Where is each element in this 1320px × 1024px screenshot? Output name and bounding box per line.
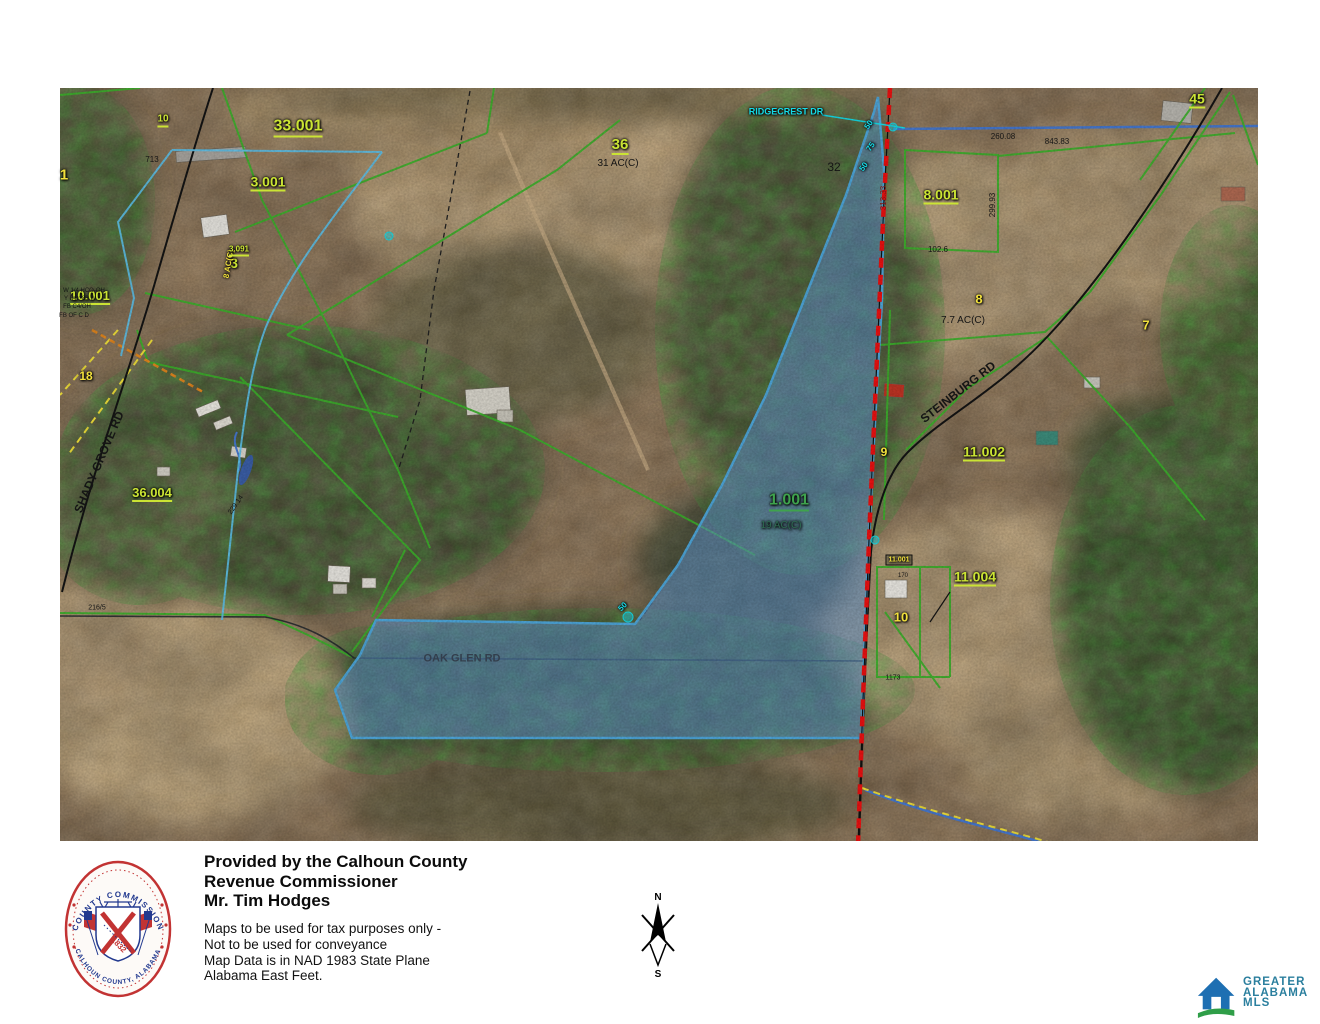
mls-text-line-3: MLS <box>1243 998 1308 1009</box>
mls-house-icon <box>1196 969 1242 1019</box>
seal-shield-icon <box>96 907 140 961</box>
provided-line-3: Mr. Tim Hodges <box>204 891 468 911</box>
county-commission-seal: COUNTY COMMISSION CALHOUN COUNTY, ALABAM… <box>58 855 178 1005</box>
compass-north-point <box>650 903 666 942</box>
disclaimer-line-2: Not to be used for conveyance <box>204 937 441 953</box>
greater-alabama-mls-logo: GREATER ALABAMA MLS <box>1196 969 1316 1017</box>
aerial-parcel-map <box>60 88 1258 841</box>
map-graphics <box>60 88 1258 841</box>
provided-line-2: Revenue Commissioner <box>204 872 468 892</box>
footer: COUNTY COMMISSION CALHOUN COUNTY, ALABAM… <box>0 841 1320 1020</box>
mls-logo-text: GREATER ALABAMA MLS <box>1243 977 1308 1009</box>
north-arrow: N S <box>628 887 688 982</box>
photo-grain <box>60 88 1258 841</box>
mls-text-line-1: GREATER <box>1243 977 1308 988</box>
disclaimer-line-4: Alabama East Feet. <box>204 968 441 984</box>
disclaimer-line-3: Map Data is in NAD 1983 State Plane <box>204 953 441 969</box>
compass-south-label: S <box>655 969 662 980</box>
disclaimer-line-1: Maps to be used for tax purposes only - <box>204 921 441 937</box>
page: { "colors":{ "chartreuse":"#cbe434","yel… <box>0 0 1320 1020</box>
provided-by-text: Provided by the Calhoun County Revenue C… <box>204 852 468 911</box>
compass-north-label: N <box>654 892 661 903</box>
disclaimer-text: Maps to be used for tax purposes only - … <box>204 921 441 984</box>
provided-line-1: Provided by the Calhoun County <box>204 852 468 872</box>
